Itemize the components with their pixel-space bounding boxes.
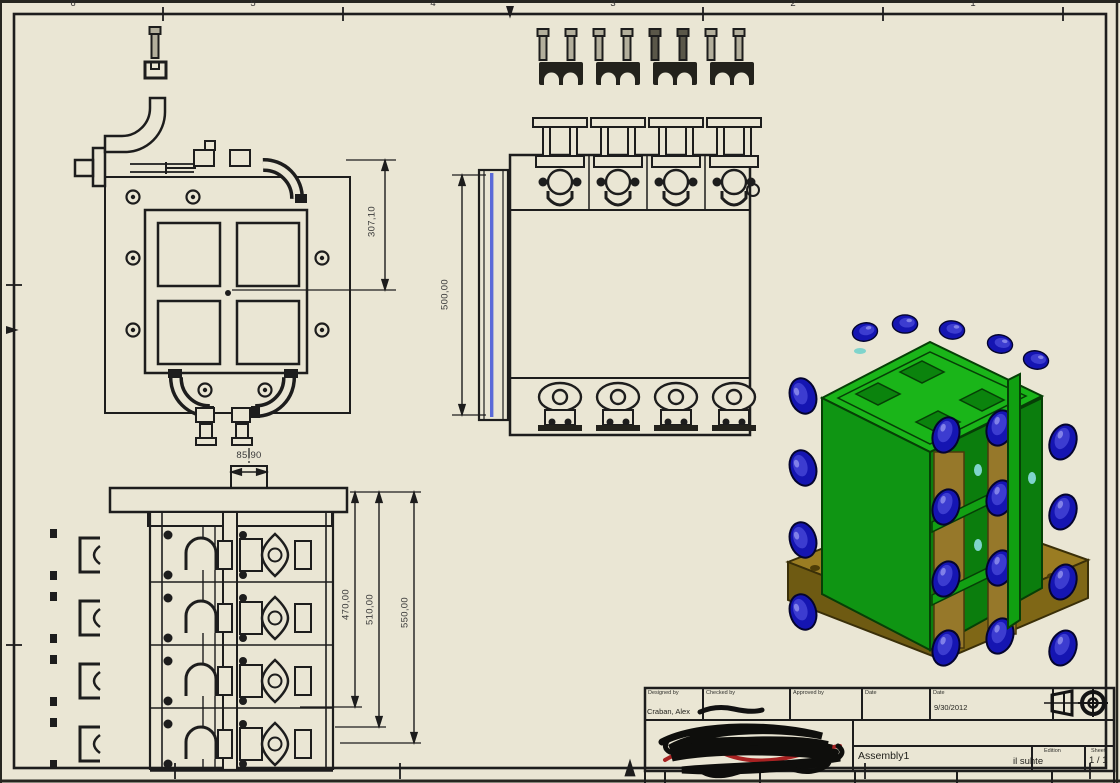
zone-number-2: 2: [786, 0, 800, 9]
loose-block-part: [75, 160, 93, 176]
checked-name-scribble: [700, 708, 762, 712]
sheet-label: Sheet: [1091, 748, 1105, 754]
plan-view[interactable]: [75, 98, 396, 445]
date-value: 9/30/2012: [934, 703, 967, 712]
zone-number-4: 4: [426, 0, 440, 9]
designed-by-value: Craban, Alex: [647, 707, 690, 716]
part-name: Assembly1: [858, 750, 909, 762]
dimension-side-550[interactable]: 550,00: [400, 581, 411, 645]
zone-number-3: 3: [606, 0, 620, 9]
sheet-value: 1 / 1: [1089, 755, 1108, 766]
green-fin: [1008, 374, 1020, 628]
designed-by-label: Designed by: [648, 690, 679, 696]
iso-view-3d[interactable]: [786, 315, 1088, 669]
zone-number-1: 1: [966, 0, 980, 9]
loose-screw-part[interactable]: [145, 27, 166, 78]
checked-by-label: Checked by: [706, 690, 735, 696]
zone-number-5: 5: [246, 0, 260, 9]
date-label: Date: [865, 690, 877, 696]
drawing-sheet: 6 5 4 3 2 1 307,10 500,00 85,90 470,00 5…: [0, 0, 1120, 783]
front-view[interactable]: [452, 118, 761, 435]
dimension-side-510[interactable]: 510,00: [365, 578, 376, 642]
approved-by-label: Approved by: [793, 690, 824, 696]
signature-scribble: [662, 727, 842, 776]
date-label-2: Date: [933, 690, 945, 696]
dimension-side-width[interactable]: 85,90: [217, 450, 281, 461]
loose-screws-row[interactable]: [538, 29, 755, 85]
front-dimension-lines: [452, 175, 486, 415]
zone-number-6: 6: [66, 0, 80, 9]
edition-value: il suhte: [1013, 756, 1043, 767]
drawing-linework: [0, 0, 1120, 783]
projection-symbol-icon: [1044, 689, 1108, 717]
dimension-side-470[interactable]: 470,00: [341, 573, 352, 637]
edition-label: Edition: [1044, 748, 1061, 754]
dimension-front-height[interactable]: 500,00: [440, 263, 451, 327]
dimension-plan-height[interactable]: 307,10: [367, 190, 378, 254]
selected-edge-highlight: [490, 173, 493, 417]
